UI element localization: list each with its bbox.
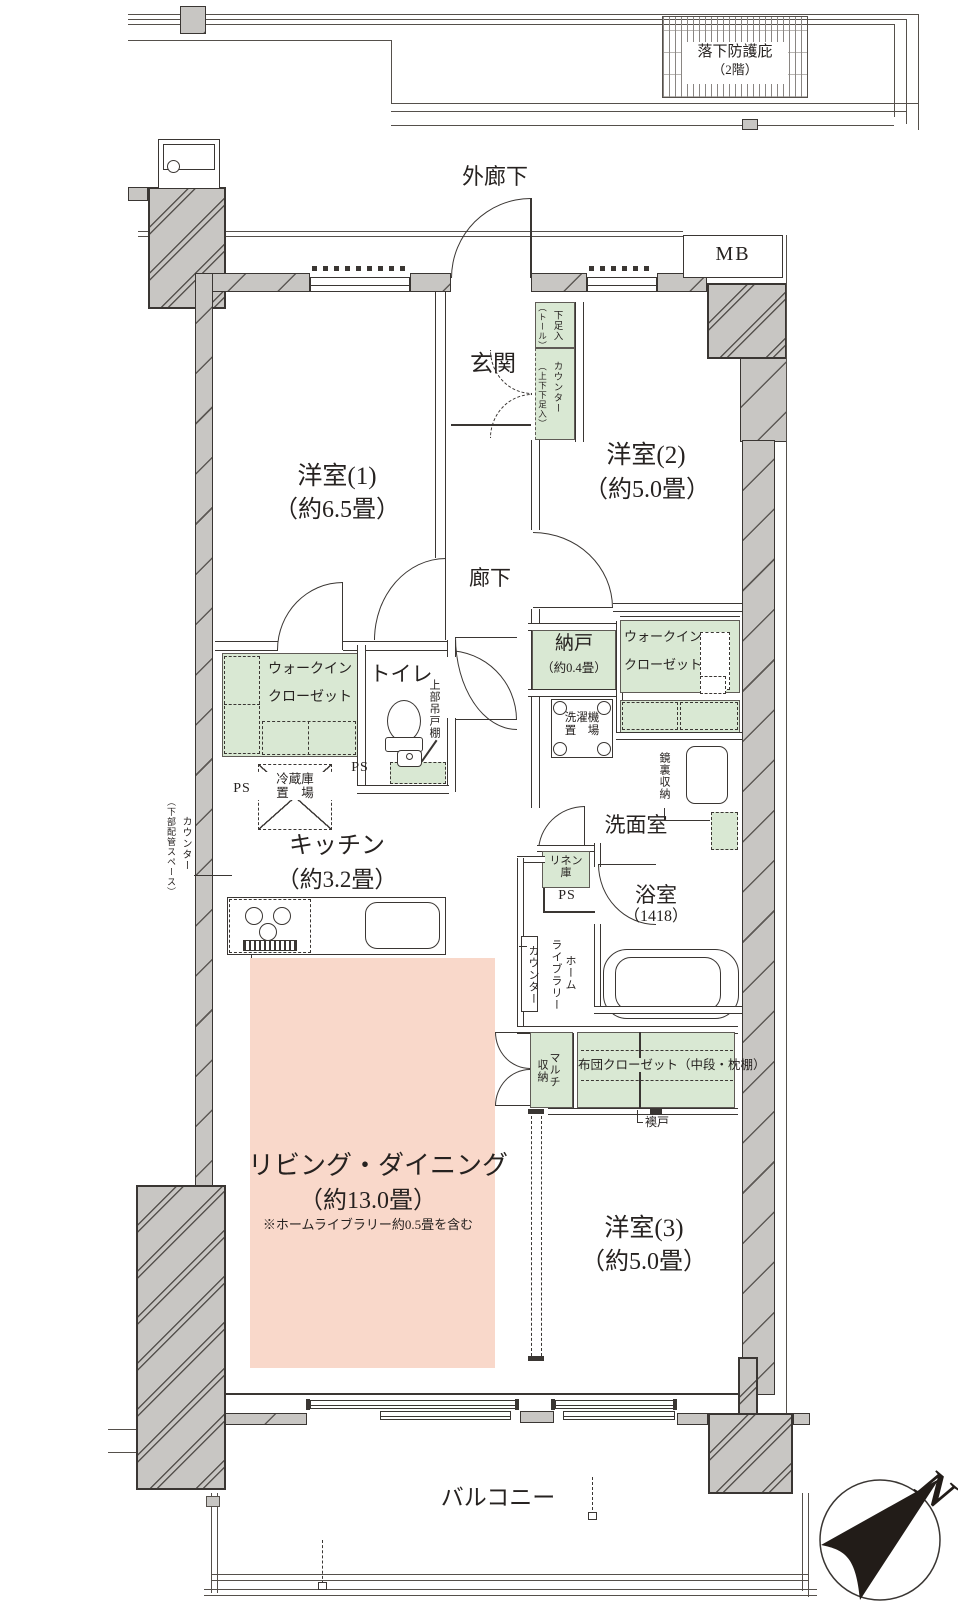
wic-right-shelf-box bbox=[680, 702, 738, 730]
wall bbox=[575, 302, 584, 442]
shoe-counter-label: カウンター bbox=[551, 355, 561, 419]
wall-stub bbox=[677, 1413, 708, 1425]
roof-line bbox=[391, 111, 906, 112]
linen-label: リネン 庫 bbox=[542, 855, 590, 880]
bedroom1-name: 洋室(1) bbox=[267, 463, 407, 491]
shoe-cabinet-tall-label: 下足入 bbox=[551, 305, 561, 347]
balcony-rail bbox=[211, 1580, 809, 1581]
toilet-basin-faucet bbox=[406, 753, 413, 760]
bedroom2-name: 洋室(2) bbox=[581, 442, 711, 470]
bedroom3-size: （約5.0畳） bbox=[564, 1249, 724, 1276]
roof-line bbox=[391, 40, 392, 103]
shoe-counter-label2: （上下下足入） bbox=[538, 351, 547, 439]
window-bedroom1 bbox=[310, 277, 410, 292]
mirror-cabinet-label: 鏡裏収納 bbox=[658, 742, 669, 810]
wic-right-label2: クローゼット bbox=[608, 658, 718, 673]
window-cap bbox=[306, 1399, 310, 1410]
refrigerator-label-line2: 置 場 bbox=[258, 786, 332, 800]
washing-machine-corner bbox=[597, 742, 611, 756]
sliding-track bbox=[548, 1108, 738, 1115]
ps-label: PS bbox=[344, 760, 376, 776]
window-cap bbox=[673, 1399, 677, 1410]
balcony-rail bbox=[204, 1589, 817, 1590]
pillar bbox=[738, 1357, 758, 1415]
stove-grill bbox=[243, 940, 297, 951]
refrigerator-label-line1: 冷蔵庫 bbox=[258, 772, 332, 786]
wic-left-label2: クローゼット bbox=[262, 690, 358, 706]
balcony-rail bbox=[217, 1493, 218, 1593]
balcony-divider-base bbox=[318, 1582, 327, 1590]
multi-storage-label2: 収納 bbox=[536, 1051, 547, 1091]
wall bbox=[215, 641, 278, 651]
wall bbox=[435, 292, 446, 558]
window-living bbox=[310, 1400, 517, 1409]
storeroom-size: （約0.4畳） bbox=[532, 661, 616, 675]
wall-stub bbox=[225, 1413, 307, 1425]
wall-stub-line bbox=[108, 1429, 136, 1430]
bath-size: （1418） bbox=[620, 908, 692, 926]
wic-right-shelf-box bbox=[622, 702, 678, 730]
balcony-divider bbox=[592, 1477, 593, 1515]
multi-door-arc bbox=[495, 1032, 530, 1069]
window-dash-line bbox=[589, 266, 655, 271]
wall-stub-line bbox=[108, 1452, 136, 1453]
stove-burner bbox=[259, 923, 277, 941]
roof-hatch-block bbox=[742, 119, 758, 130]
upper-cabinet-label: 上部吊戸棚 bbox=[428, 671, 439, 747]
washing-machine-label-line2: 置 場 bbox=[551, 725, 613, 738]
wall bbox=[594, 924, 601, 1014]
wic-left-shelf bbox=[224, 656, 260, 754]
window-living bbox=[380, 1411, 511, 1420]
washing-machine-label: 洗濯機 置 場 bbox=[551, 712, 613, 738]
storeroom-name: 納戸 bbox=[532, 633, 616, 654]
window-cap bbox=[551, 1399, 555, 1410]
canopy-label: 落下防護庇 bbox=[682, 44, 788, 61]
wall bbox=[528, 689, 618, 697]
kitchen-sink bbox=[365, 902, 440, 949]
living-size: （約13.0畳） bbox=[268, 1188, 468, 1215]
wall-stub bbox=[128, 187, 148, 201]
wall bbox=[531, 440, 540, 530]
multi-door-arc bbox=[495, 1069, 530, 1106]
mirror-cabinet bbox=[711, 812, 738, 850]
compass: N bbox=[808, 1452, 958, 1607]
ps-label: PS bbox=[226, 781, 258, 797]
home-library-label3: カウンター bbox=[527, 940, 538, 1010]
toilet-label: トイレ bbox=[368, 663, 434, 687]
window-bedroom3 bbox=[555, 1400, 675, 1409]
wic-right-notch bbox=[700, 676, 726, 694]
wic-left-shelf-line bbox=[224, 704, 260, 705]
wall bbox=[616, 732, 742, 740]
stove-burner bbox=[273, 907, 291, 925]
meter-box-label: MB bbox=[683, 243, 783, 265]
futon-shelf-line bbox=[581, 1080, 733, 1081]
bath-name: 浴室 bbox=[624, 884, 688, 908]
outer-right-line bbox=[786, 235, 787, 1413]
linen-label-line1: リネン bbox=[542, 855, 590, 867]
window-dash-line bbox=[312, 266, 408, 271]
balcony-rail bbox=[211, 1574, 809, 1575]
wall bbox=[613, 603, 742, 612]
pillar bbox=[708, 1413, 793, 1494]
floor-plan: 落下防護庇 （2階） 外廊下 MB 玄関 下足入 （トール） カウンター （上下… bbox=[0, 0, 960, 1608]
kitchen-name: キッチン bbox=[277, 833, 397, 860]
home-library-label2: ライブラリー bbox=[550, 934, 561, 1016]
step-line bbox=[543, 911, 595, 913]
bedroom2-door-arc bbox=[533, 532, 613, 608]
equipment-dot bbox=[167, 160, 180, 173]
washing-machine-label-line1: 洗濯機 bbox=[551, 712, 613, 725]
futon-shelf-line bbox=[581, 1050, 733, 1051]
living-note: ※ホームライブラリー約0.5畳を含む bbox=[238, 1218, 498, 1233]
slide-door-line bbox=[541, 1116, 542, 1356]
bedroom1-size: （約6.5畳） bbox=[257, 497, 417, 524]
wall-top bbox=[531, 273, 587, 292]
toilet-bowl bbox=[387, 700, 421, 742]
wall-stub bbox=[793, 1413, 810, 1425]
hallway-label: 廊下 bbox=[455, 567, 525, 591]
roof-hatch-block bbox=[180, 6, 206, 34]
wall-top bbox=[410, 273, 451, 292]
entrance-door-leaf bbox=[530, 198, 532, 278]
stove-burner bbox=[245, 907, 263, 925]
leader-line bbox=[194, 875, 232, 876]
canopy-label-floor: （2階） bbox=[682, 63, 788, 78]
home-library-label: ホーム bbox=[564, 942, 575, 1004]
pillar bbox=[707, 283, 787, 359]
washbasin bbox=[686, 746, 728, 804]
ps-label: PS bbox=[551, 888, 583, 904]
wic-left-label: ウォークイン bbox=[262, 662, 358, 678]
wall bbox=[447, 640, 456, 657]
track-hatch bbox=[650, 1108, 662, 1115]
bedroom1-door-arc bbox=[374, 558, 446, 640]
balcony-label: バルコニー bbox=[438, 1485, 558, 1511]
wall-stub bbox=[520, 1411, 554, 1423]
wall bbox=[357, 785, 449, 794]
window-bedroom2 bbox=[587, 277, 657, 292]
roof-line bbox=[918, 14, 919, 130]
wic-left-door-arc bbox=[277, 582, 343, 650]
balcony-rail bbox=[204, 1595, 817, 1596]
roof-line bbox=[128, 40, 391, 41]
balcony-divider-base bbox=[588, 1512, 597, 1520]
roof-line bbox=[128, 14, 918, 15]
balcony-rail-cap bbox=[206, 1496, 220, 1507]
living-name: リビング・ダイニング bbox=[248, 1151, 488, 1180]
bedroom3-name: 洋室(3) bbox=[574, 1215, 714, 1243]
shoe-door-arc bbox=[490, 394, 532, 438]
wic-left-shelf-line bbox=[308, 721, 309, 755]
fusuma-label: 襖戸 bbox=[645, 1116, 685, 1129]
wic-left-shelf bbox=[262, 721, 356, 755]
roof-line bbox=[391, 103, 918, 104]
futon-closet-label: 布団クローゼット（中段・枕棚） bbox=[578, 1058, 734, 1072]
linen-label-line2: 庫 bbox=[542, 867, 590, 879]
kitchen-size: （約3.2畳） bbox=[275, 867, 399, 893]
slide-door-line bbox=[531, 1116, 532, 1356]
outer-corridor-label: 外廊下 bbox=[435, 165, 555, 190]
balcony-rail bbox=[211, 1493, 212, 1593]
multi-storage-label: マルチ bbox=[548, 1042, 559, 1098]
washing-machine-corner bbox=[553, 742, 567, 756]
wall bbox=[594, 1006, 742, 1014]
slide-door-stub bbox=[528, 1109, 544, 1114]
leader-line bbox=[637, 1122, 643, 1123]
pillar bbox=[136, 1185, 226, 1490]
shoe-door-arc bbox=[490, 350, 532, 394]
entrance-door-arc bbox=[451, 198, 531, 278]
shoe-cabinet-tall-label2: （トール） bbox=[538, 303, 547, 348]
counter-pipe-label: カウンター bbox=[180, 808, 190, 878]
wic-right-label: ウォークイン bbox=[608, 630, 718, 645]
bathtub-inner bbox=[615, 957, 721, 1011]
bedroom2-size: （約5.0畳） bbox=[577, 477, 717, 504]
refrigerator-label: 冷蔵庫 置 場 bbox=[258, 772, 332, 800]
balcony-rail bbox=[802, 1493, 803, 1591]
window-bedroom3 bbox=[563, 1411, 675, 1420]
wall-right bbox=[740, 357, 787, 442]
step-line bbox=[543, 888, 545, 913]
washroom-label: 洗面室 bbox=[594, 814, 678, 838]
roof-line bbox=[391, 125, 894, 126]
balcony-divider bbox=[322, 1540, 323, 1584]
wall bbox=[447, 718, 456, 792]
counter-pipe-label2: （下部配管スペース） bbox=[166, 797, 175, 893]
window-cap bbox=[515, 1399, 519, 1410]
floor-edge bbox=[215, 1393, 744, 1395]
roof-line bbox=[906, 19, 907, 124]
leader-line bbox=[519, 946, 527, 947]
wall-right bbox=[742, 440, 775, 1395]
slide-door-stub bbox=[528, 1356, 544, 1361]
